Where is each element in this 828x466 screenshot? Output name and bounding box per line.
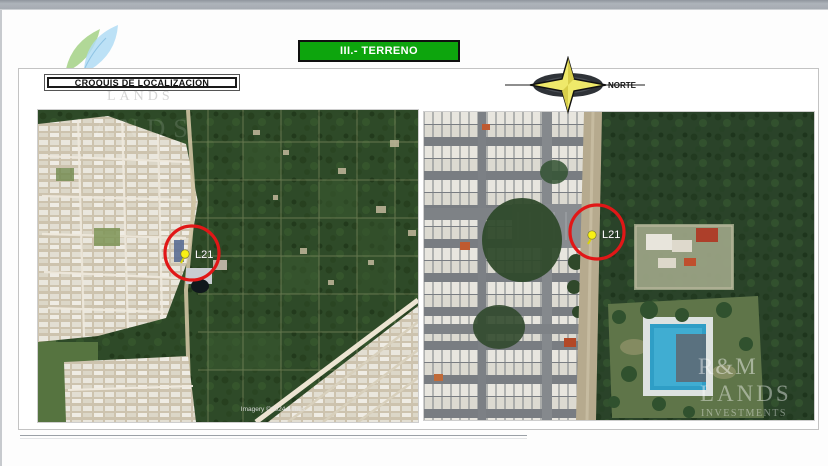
croquis-title-label: CROQUIS DE LOCALIZACIÓN: [75, 78, 209, 88]
watermark-line1: R&M: [698, 354, 758, 379]
street: [478, 112, 486, 420]
divider-line: [20, 435, 527, 439]
section-banner-label: III.- TERRENO: [340, 45, 418, 57]
park-patch: [94, 228, 120, 246]
map-watermark-ghost: ANDS: [93, 114, 196, 143]
right-satellite-map: L21 R&M LANDS INVESTMENTS: [424, 112, 814, 420]
section-banner: III.- TERRENO: [298, 40, 460, 62]
marker-label: L21: [195, 249, 213, 261]
watermark-line2: LANDS: [700, 381, 792, 406]
compass-label: NORTE: [608, 81, 637, 90]
compound: [634, 224, 734, 290]
leaf-logo-icon: [58, 22, 132, 72]
left-satellite-map: ANDS L21 Imagery ©2024 Airbus: [38, 110, 418, 422]
imagery-attribution: Imagery ©2024 Airbus: [241, 405, 306, 413]
compass-rose-icon: NORTE: [505, 56, 645, 116]
page-edge-line: [0, 10, 2, 466]
marker-label: L21: [602, 229, 620, 241]
watermark-ghost-text: LANDS: [107, 89, 174, 105]
watermark-line3: INVESTMENTS: [701, 408, 787, 419]
park-patch: [56, 168, 74, 181]
window-titlebar: [0, 0, 828, 10]
